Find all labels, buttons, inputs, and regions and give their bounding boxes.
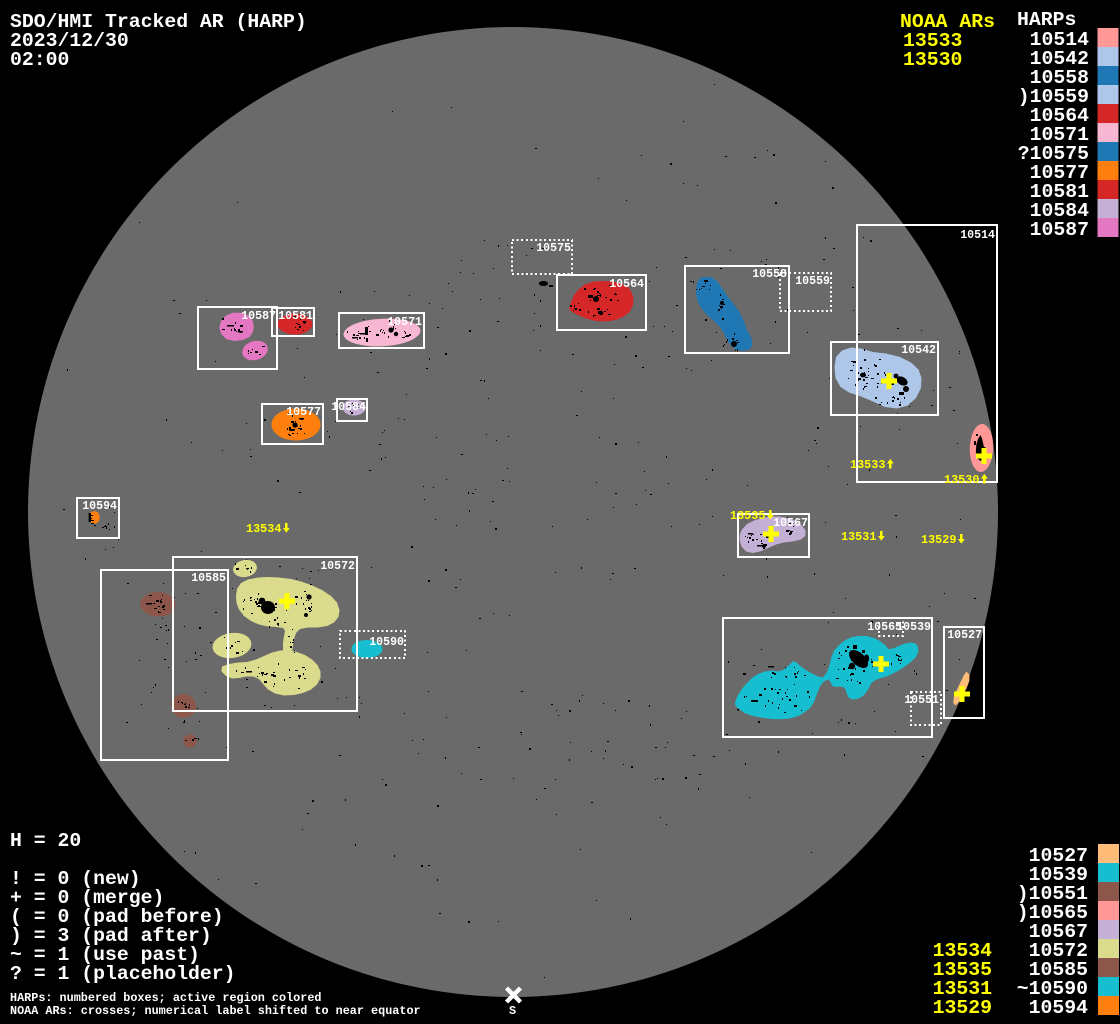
- svg-text:10564: 10564: [609, 278, 644, 291]
- svg-text:10587: 10587: [241, 310, 276, 323]
- svg-text:10581: 10581: [278, 310, 313, 323]
- svg-text:HARPs: numbered boxes; active: HARPs: numbered boxes; active region col…: [10, 991, 322, 1005]
- svg-text:13530: 13530: [903, 49, 962, 71]
- svg-text:10527: 10527: [947, 629, 982, 642]
- svg-text:NOAA ARs: crosses; numerical l: NOAA ARs: crosses; numerical label shift…: [10, 1004, 421, 1018]
- svg-text:HARPs: HARPs: [1017, 9, 1076, 31]
- svg-text:13531: 13531: [841, 530, 876, 544]
- svg-text:10577: 10577: [286, 406, 321, 419]
- svg-text:10571: 10571: [387, 316, 422, 329]
- svg-text:10594: 10594: [1029, 997, 1088, 1019]
- svg-text:10567: 10567: [773, 517, 808, 530]
- svg-text:10575: 10575: [536, 242, 571, 255]
- svg-text:10514: 10514: [960, 229, 995, 242]
- svg-text:10584: 10584: [331, 401, 366, 414]
- svg-text:S: S: [509, 1004, 516, 1018]
- svg-text:13535: 13535: [730, 509, 765, 523]
- svg-text:02:00: 02:00: [10, 49, 69, 71]
- svg-text:10587: 10587: [1030, 219, 1089, 241]
- svg-text:10559: 10559: [795, 275, 830, 288]
- svg-text:13534: 13534: [246, 522, 281, 536]
- svg-text:10585: 10585: [191, 572, 226, 585]
- svg-text:10542: 10542: [901, 344, 936, 357]
- svg-text:10594: 10594: [82, 500, 117, 513]
- svg-text:10539: 10539: [896, 621, 931, 634]
- svg-text:H = 20: H = 20: [10, 830, 81, 852]
- svg-text:10590: 10590: [369, 636, 404, 649]
- svg-text:13530: 13530: [944, 473, 979, 487]
- svg-text:10558: 10558: [752, 268, 787, 281]
- svg-text:13529: 13529: [921, 533, 956, 547]
- svg-text:10551: 10551: [904, 694, 939, 707]
- svg-text:10572: 10572: [320, 560, 355, 573]
- svg-text:13529: 13529: [933, 997, 992, 1019]
- svg-text:? = 1 (placeholder): ? = 1 (placeholder): [10, 963, 236, 985]
- svg-text:13533: 13533: [850, 458, 885, 472]
